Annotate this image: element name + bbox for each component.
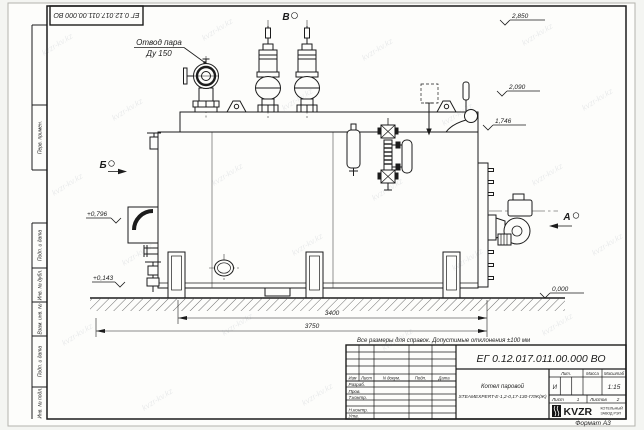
svg-text:3750: 3750	[305, 323, 320, 330]
header-doc: N докум.	[383, 375, 400, 380]
format-note: Формат А3	[575, 420, 611, 427]
role-razrab: Разраб.	[349, 382, 366, 387]
margin-label-podp-data-2: Подп. и дата	[38, 346, 44, 378]
header-date: Дата	[437, 375, 450, 380]
role-prov: Пров.	[349, 389, 361, 394]
logo-name: KVZR	[564, 406, 593, 418]
boiler-general-view-drawing: Перв. примен. Подп. и дата Инв. № дубл. …	[0, 0, 644, 430]
role-nkontr: Н.контр.	[349, 407, 368, 412]
svg-text:2,850: 2,850	[511, 13, 529, 20]
svg-text:+0,796: +0,796	[87, 211, 107, 218]
sheet-label: Лист	[551, 397, 564, 402]
steam-drum-platform	[180, 112, 478, 132]
logo-sub1: КОТЕЛЬНЫЙ	[601, 407, 624, 411]
margin-label-vzam-inv: Взам. инв. №	[38, 303, 44, 335]
support-leg-2	[306, 252, 323, 298]
header-podp: Подп.	[415, 375, 426, 380]
margin-label-inv-dubl: Инв. № дубл.	[38, 270, 44, 301]
support-leg-3	[443, 252, 460, 298]
header-izm: Изм	[349, 375, 357, 380]
lit-label: Лит.	[560, 371, 571, 376]
margin-label-inv-podl: Инв. № подл.	[38, 387, 44, 418]
lit-value: И	[553, 385, 558, 391]
svg-text:Б: Б	[99, 160, 106, 171]
svg-text:0,000: 0,000	[552, 286, 569, 293]
svg-text:А: А	[562, 212, 570, 223]
svg-text:3400: 3400	[325, 310, 340, 317]
drawing-sheet: Перв. примен. Подп. и дата Инв. № дубл. …	[0, 0, 644, 430]
svg-text:В: В	[282, 12, 289, 23]
margin-label-perv-primen: Перв. примен.	[38, 121, 44, 154]
role-tkontr: Т.контр.	[349, 395, 368, 400]
logo-mark-icon	[552, 405, 561, 417]
svg-text:1,746: 1,746	[495, 118, 512, 125]
callout-line1: Отвод пара	[136, 38, 182, 47]
product-model: STEAMEXPERT-Е-1,2-0,17-130-ГЛЖ(Ж)	[458, 394, 547, 400]
svg-text:+0,143: +0,143	[93, 275, 113, 282]
svg-text:2,090: 2,090	[508, 84, 526, 91]
front-smokebox	[128, 207, 158, 243]
support-leg-1	[168, 252, 185, 298]
sheets-label: Листов	[589, 397, 607, 402]
massa-label: Масса	[586, 371, 599, 376]
top-designation-text: ЕГ 0.12.017.011.00.000 ВО	[53, 11, 140, 18]
role-utv: Утв.	[349, 414, 359, 419]
sheet-value: 1	[577, 397, 580, 402]
callout-line2: Ду 150	[145, 49, 172, 58]
product-name: Котел паровой	[481, 383, 525, 390]
bottom-drain-box	[265, 288, 290, 296]
reference-note: Все размеры для справок. Допустимые откл…	[357, 338, 530, 344]
header-list: Лист	[360, 375, 372, 380]
titleblock-designation: ЕГ 0.12.017.011.00.000 ВО	[476, 353, 605, 365]
margin-label-podp-data-1: Подп. и дата	[38, 230, 44, 262]
scale-value: 1:15	[608, 384, 621, 391]
sheets-value: 2	[616, 397, 620, 402]
scale-label: Масштаб	[604, 371, 625, 376]
logo-sub2: ЗАВОД РЭП	[601, 412, 622, 416]
